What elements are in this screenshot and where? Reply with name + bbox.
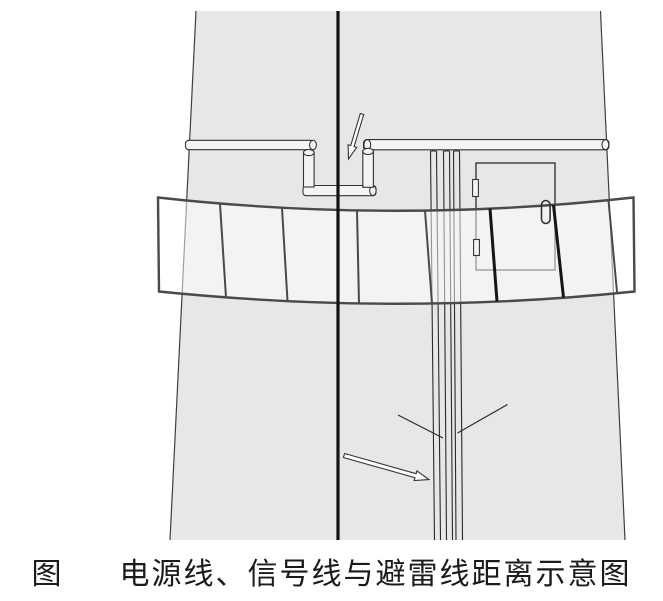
figure-caption-text: 电源线、信号线与避雷线距离示意图 <box>120 549 632 593</box>
platform-band <box>158 198 635 304</box>
rail-right-segment <box>364 140 610 150</box>
rail-right-end-cap <box>602 140 609 150</box>
diagram-canvas <box>0 0 663 601</box>
conduit-right-cap <box>363 148 374 154</box>
conduit-right-pipe <box>363 151 374 188</box>
cabinet-hinge-bottom <box>474 240 480 256</box>
figure-label: 图 <box>32 549 64 593</box>
figure-caption: 图 电源线、信号线与避雷线距离示意图 <box>0 549 663 593</box>
platform-rail <box>186 140 610 150</box>
cabinet-hinge-top <box>473 180 479 197</box>
conduit-left-pipe <box>304 152 315 187</box>
rail-left-segment <box>186 140 314 149</box>
rail-left-end-cap <box>310 140 317 149</box>
figure: 图 电源线、信号线与避雷线距离示意图 <box>0 0 663 601</box>
conduit-left-cap <box>304 150 315 156</box>
